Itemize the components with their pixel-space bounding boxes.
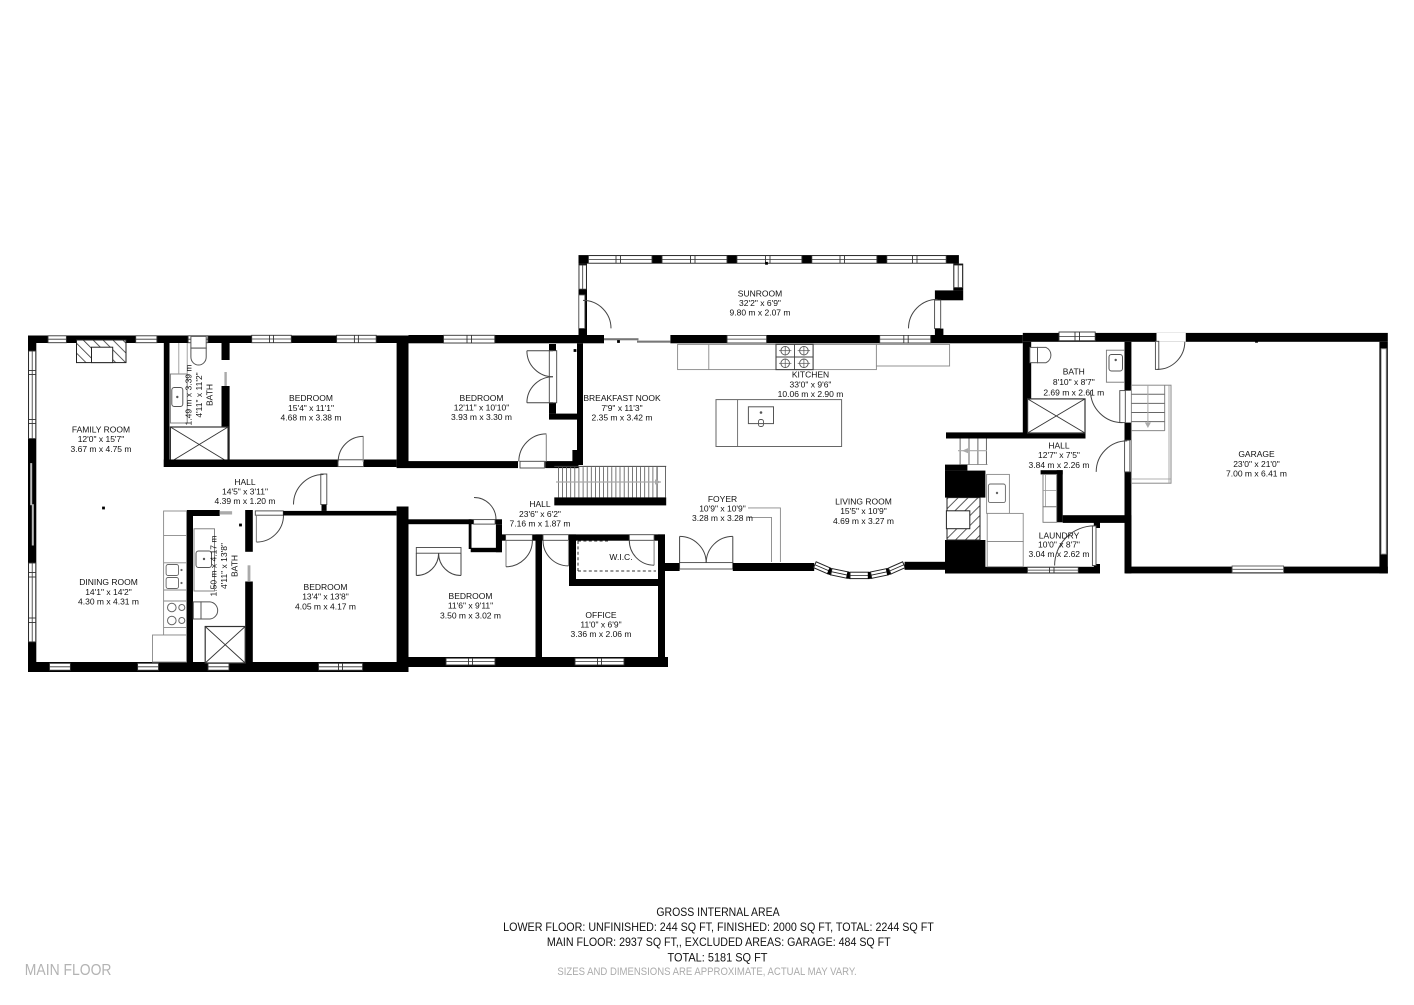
svg-text:4'11" x 13'8": 4'11" x 13'8" — [219, 543, 229, 589]
svg-text:FAMILY ROOM12'0" x 15'7"3.67 m: FAMILY ROOM12'0" x 15'7"3.67 m x 4.75 m — [71, 424, 132, 453]
svg-text:1.49 m x 3.39 m: 1.49 m x 3.39 m — [184, 365, 194, 426]
svg-text:DINING ROOM14'1" x 14'2"4.30 m: DINING ROOM14'1" x 14'2"4.30 m x 4.31 m — [78, 577, 139, 606]
svg-text:BEDROOM15'4" x 11'1"4.68 m x 3: BEDROOM15'4" x 11'1"4.68 m x 3.38 m — [281, 393, 342, 422]
svg-text:W.I.C.: W.I.C. — [609, 552, 632, 562]
svg-text:1.50 m x 4.17 m: 1.50 m x 4.17 m — [209, 536, 219, 597]
svg-text:BEDROOM12'11" x 10'10"3.93 m x: BEDROOM12'11" x 10'10"3.93 m x 3.30 m — [451, 393, 512, 422]
svg-text:MAIN FLOOR: MAIN FLOOR — [25, 962, 112, 979]
svg-text:BATH: BATH — [230, 555, 240, 577]
svg-text:BEDROOM11'6" x 9'11"3.50 m x 3: BEDROOM11'6" x 9'11"3.50 m x 3.02 m — [440, 591, 501, 620]
svg-text:4'11" x 11'2": 4'11" x 11'2" — [194, 372, 204, 417]
svg-text:BATH: BATH — [205, 384, 215, 406]
svg-text:BEDROOM13'4" x 13'8"4.05 m x 4: BEDROOM13'4" x 13'8"4.05 m x 4.17 m — [295, 582, 356, 611]
svg-text:SIZES AND DIMENSIONS ARE APPRO: SIZES AND DIMENSIONS ARE APPROXIMATE, AC… — [557, 966, 856, 978]
svg-text:LIVING ROOM15'5" x 10'9"4.69 m: LIVING ROOM15'5" x 10'9"4.69 m x 3.27 m — [833, 497, 894, 526]
